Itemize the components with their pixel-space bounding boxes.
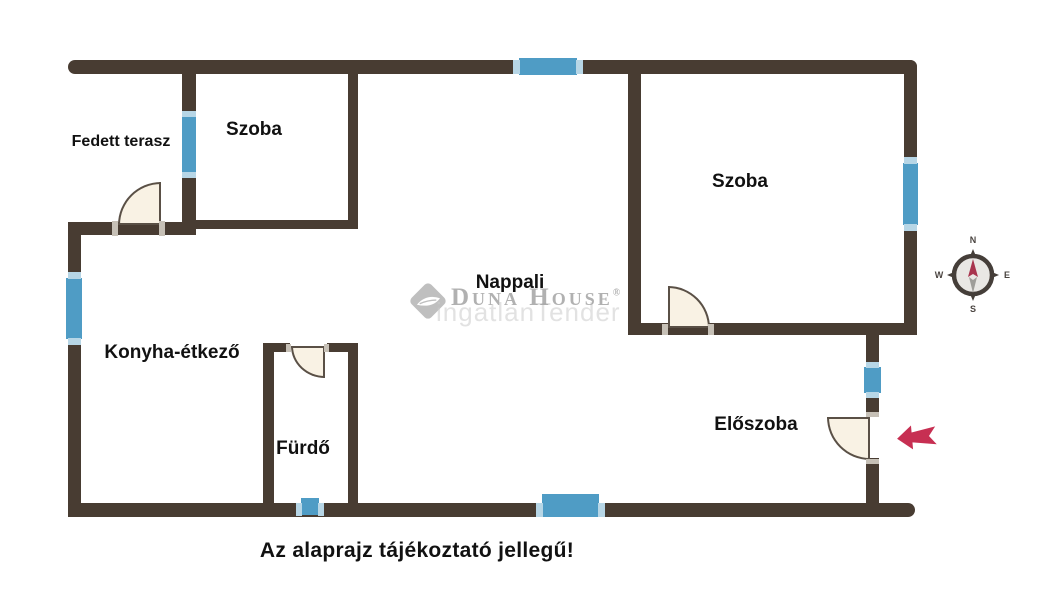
window-cap bbox=[296, 503, 302, 516]
wall-bathroom-right bbox=[348, 343, 358, 505]
door-jamb bbox=[866, 459, 879, 464]
window-hallway bbox=[864, 367, 881, 393]
room-label-living-room: Nappali bbox=[476, 272, 545, 294]
wall-bedroom-right-divider bbox=[628, 60, 641, 334]
room-label-terrace: Fedett terasz bbox=[72, 133, 171, 151]
door-jamb bbox=[866, 412, 879, 417]
window-cap bbox=[904, 157, 917, 164]
wall-bathroom-top-right bbox=[327, 343, 358, 352]
room-label-bathroom: Fürdő bbox=[276, 438, 330, 460]
compass-label-east: E bbox=[1004, 270, 1010, 280]
door-entrance-arc bbox=[827, 417, 870, 460]
registered-mark: ® bbox=[613, 288, 623, 299]
disclaimer-caption: Az alaprajz tájékoztató jellegű! bbox=[260, 539, 574, 563]
window-cap bbox=[513, 60, 520, 74]
window-top bbox=[519, 58, 577, 75]
window-bedroom-right bbox=[903, 163, 918, 225]
door-jamb bbox=[662, 324, 668, 335]
room-label-bedroom-left: Szoba bbox=[226, 119, 282, 141]
wall-hallway-right-upper bbox=[866, 323, 879, 367]
window-cap bbox=[576, 60, 583, 74]
room-label-kitchen-dining: Konyha-étkező bbox=[104, 342, 239, 364]
window-cap bbox=[866, 392, 879, 398]
window-cap bbox=[598, 503, 605, 517]
window-cap bbox=[182, 111, 196, 117]
door-jamb bbox=[112, 221, 118, 236]
entrance-arrow-icon bbox=[895, 420, 939, 454]
window-cap bbox=[318, 503, 324, 516]
door-bedroom-right-arc bbox=[668, 286, 710, 328]
room-label-bedroom-right: Szoba bbox=[712, 171, 768, 193]
window-cap bbox=[182, 172, 196, 178]
door-bathroom-arc bbox=[291, 346, 325, 378]
wall-left-outer bbox=[68, 222, 81, 517]
window-cap bbox=[68, 272, 81, 279]
window-cap bbox=[536, 503, 543, 517]
wall-bedroom-left-bottom bbox=[190, 220, 358, 229]
room-label-hallway: Előszoba bbox=[714, 414, 797, 436]
wall-hallway-right-lower bbox=[866, 458, 879, 504]
window-bathroom-bottom bbox=[301, 498, 319, 515]
compass-label-west: W bbox=[935, 270, 944, 280]
window-terrace-divider bbox=[182, 116, 196, 173]
compass-label-north: N bbox=[970, 235, 977, 245]
window-cap bbox=[68, 338, 81, 345]
door-terrace-arc bbox=[118, 182, 161, 225]
wall-bedroom-left-divider bbox=[348, 60, 358, 229]
door-jamb bbox=[159, 221, 165, 236]
door-jamb bbox=[708, 324, 714, 335]
window-living-bottom bbox=[542, 494, 599, 517]
window-cap bbox=[866, 362, 879, 368]
floor-plan: ingatlanTender Duna House® bbox=[0, 0, 1045, 600]
compass-label-south: S bbox=[970, 304, 976, 314]
window-cap bbox=[904, 224, 917, 231]
compass: N E S W bbox=[931, 234, 1015, 316]
wall-bottom-outer bbox=[68, 503, 915, 517]
door-jamb bbox=[324, 344, 329, 352]
wall-bathroom-left bbox=[263, 343, 274, 505]
door-jamb bbox=[286, 344, 291, 352]
window-kitchen-left bbox=[66, 278, 82, 339]
